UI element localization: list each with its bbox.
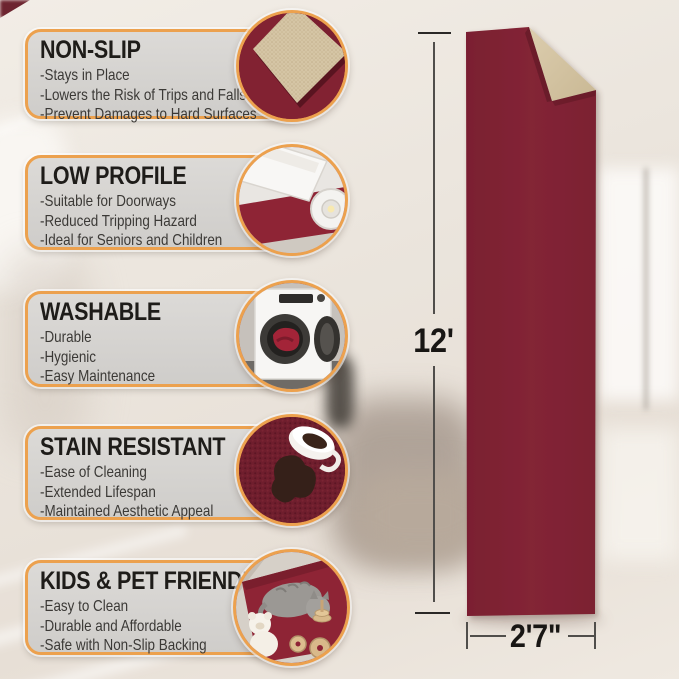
feature-photo-kids-pet-friendly	[233, 549, 350, 666]
width-dimension-line-right	[568, 635, 594, 637]
height-dimension-cap-top	[418, 32, 451, 34]
height-dimension-label: 12'	[402, 318, 466, 364]
feature-photo-washable	[236, 280, 348, 392]
width-dimension-line-left	[470, 635, 506, 637]
feature-photo-non-slip	[236, 10, 348, 122]
width-dimension-tick-right	[594, 622, 596, 649]
cat-and-toys-icon	[236, 552, 347, 663]
coffee-spill-icon	[239, 417, 345, 523]
feature-photo-stain-resistant	[236, 414, 348, 526]
height-dimension-cap-bottom	[415, 612, 450, 614]
feature-bullet: -Prevent Damages to Hard Surfaces	[40, 105, 290, 125]
width-dimension-label: 2'7"	[504, 617, 568, 655]
feature-photo-low-profile	[236, 144, 348, 256]
height-dimension-line-lower	[433, 366, 435, 602]
door-clearance-icon	[239, 147, 345, 253]
bg-window-frame-blur	[644, 168, 648, 410]
runner-rug-image	[455, 18, 615, 640]
product-infographic: NON-SLIP -Stays in Place -Lowers the Ris…	[0, 0, 679, 679]
washing-machine-icon	[239, 283, 345, 389]
width-dimension-tick-left	[466, 622, 468, 649]
folded-rug-corner-icon	[239, 13, 345, 119]
rug-face	[466, 27, 596, 616]
height-dimension-line-upper	[433, 42, 435, 314]
